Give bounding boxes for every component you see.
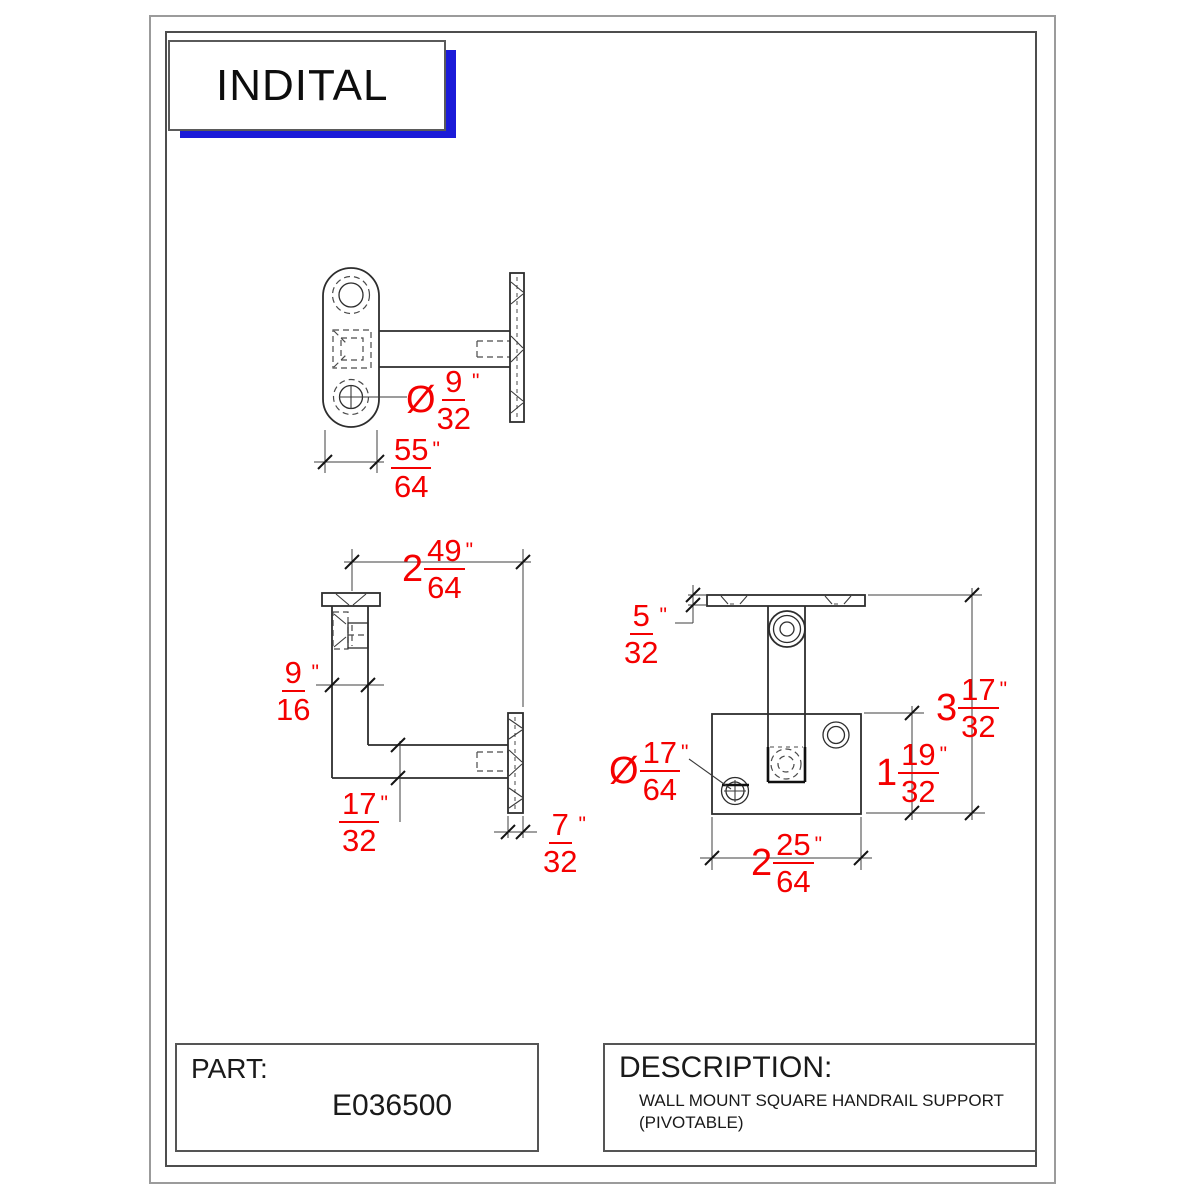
dim-fraction: 1732 [339, 788, 379, 856]
dim-unit: " [940, 744, 946, 765]
description-line: WALL MOUNT SQUARE HANDRAIL SUPPORT [639, 1091, 1004, 1111]
part-label: PART: [191, 1053, 268, 1085]
title-block-part: PART: E036500 [175, 1043, 539, 1152]
dim-fraction: 1732 [958, 674, 998, 742]
dim-lead: Ø [609, 752, 639, 790]
dim-top-hole-diameter: Ø 932 " [406, 366, 479, 434]
description-label: DESCRIPTION: [619, 1051, 832, 1085]
dim-lead: 2 [751, 844, 772, 882]
dim-fraction: 732 [543, 809, 577, 877]
dim-unit: " [815, 834, 821, 855]
dim-fraction: 532 [624, 600, 658, 668]
description-line: (PIVOTABLE) [639, 1113, 744, 1133]
dim-plate-height: 1 1932 " [876, 739, 946, 807]
dim-fraction: 4964 [424, 535, 464, 603]
dim-flange-thickness: 732 " [543, 809, 585, 877]
dim-arm-thickness: 1732 " [339, 788, 387, 856]
dim-unit: " [472, 371, 478, 392]
dim-lead: Ø [406, 381, 436, 419]
logo-box: INDITAL [168, 40, 446, 131]
dim-fraction: 1932 [898, 739, 938, 807]
dim-fraction: 916 [276, 657, 310, 725]
dim-unit: " [1000, 679, 1006, 700]
dim-overall-height: 3 1732 " [936, 674, 1006, 742]
drawing-sheet: INDITAL [0, 0, 1200, 1200]
drawing-linework [0, 0, 1200, 1200]
dim-fraction: 1764 [640, 737, 680, 805]
dim-mount-hole-diameter: Ø 1764 " [609, 737, 688, 805]
dim-lead: 3 [936, 689, 957, 727]
dim-unit: " [578, 814, 584, 835]
dim-reach: 2 4964 " [402, 535, 472, 603]
dim-fraction: 5564 [391, 434, 431, 502]
dim-unit: " [432, 439, 438, 460]
dim-saddle-thickness: 532 " [624, 600, 666, 668]
dim-arm-width: 916 " [276, 657, 318, 725]
part-number: E036500 [332, 1089, 452, 1123]
dim-unit: " [380, 793, 386, 814]
dim-lead: 2 [402, 550, 423, 588]
dim-unit: " [466, 540, 472, 561]
dim-lead: 1 [876, 754, 897, 792]
dim-plate-width-top: 5564 " [391, 434, 439, 502]
dim-fraction: 932 [437, 366, 471, 434]
dim-unit: " [659, 605, 665, 626]
title-block-description: DESCRIPTION: WALL MOUNT SQUARE HANDRAIL … [603, 1043, 1037, 1152]
dim-fraction: 2564 [773, 829, 813, 897]
dim-unit: " [681, 742, 687, 763]
dim-plate-width-front: 2 2564 " [751, 829, 821, 897]
dim-unit: " [311, 662, 317, 683]
logo-text: INDITAL [216, 61, 388, 111]
